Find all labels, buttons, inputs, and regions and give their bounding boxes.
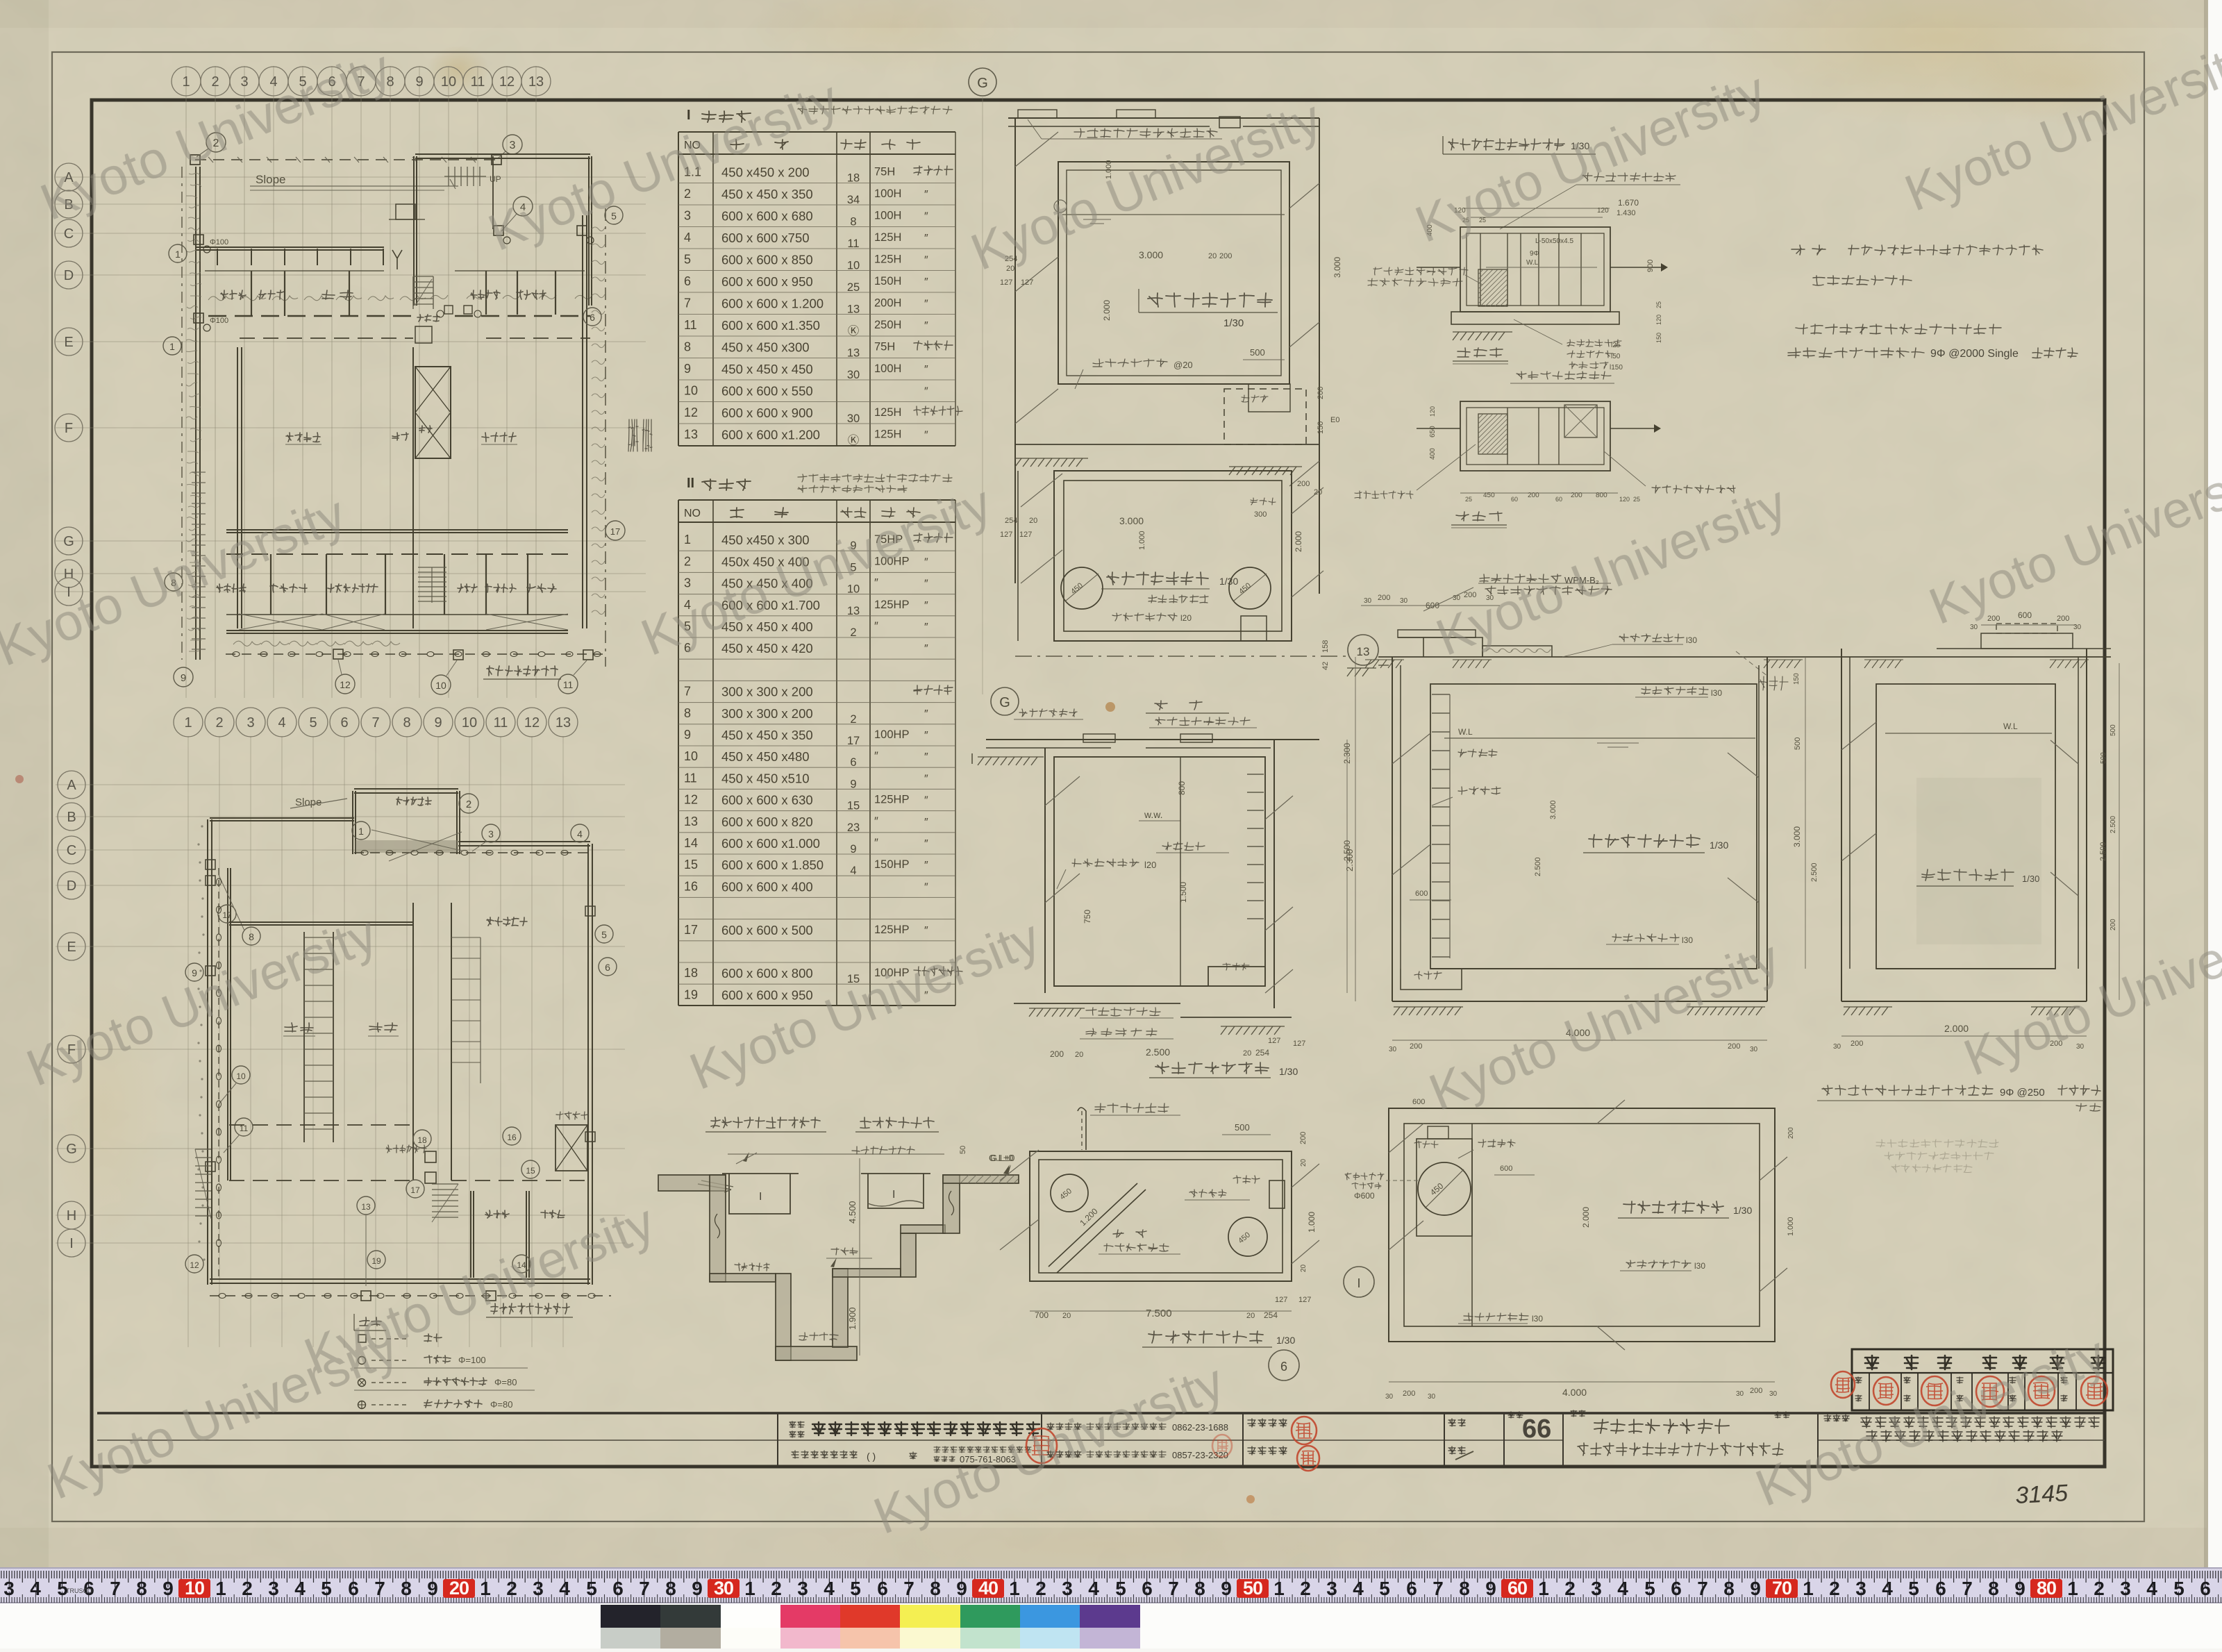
svg-text:11: 11 [684,771,697,785]
svg-text:4: 4 [30,1578,41,1599]
svg-text:1: 1 [480,1578,491,1599]
svg-text:12: 12 [340,679,351,690]
svg-text:Ɩ30: Ɩ30 [1682,935,1693,945]
svg-text:″: ″ [874,750,878,762]
svg-text:30: 30 [1769,1390,1778,1398]
svg-text:4: 4 [824,1578,835,1599]
svg-text:9Φ: 9Φ [1530,250,1539,258]
svg-text:14: 14 [684,836,698,850]
svg-text:UP: UP [490,174,501,184]
svg-text:6: 6 [612,1578,624,1599]
svg-text:6: 6 [877,1578,888,1599]
svg-text:6: 6 [850,756,856,769]
svg-text:1.000: 1.000 [1787,1217,1795,1236]
svg-text:18: 18 [417,1135,427,1145]
svg-text:600 x 600 x 820: 600 x 600 x 820 [721,815,813,829]
svg-text:600: 600 [2018,610,2032,620]
svg-text:300 x 300 x 200: 300 x 300 x 200 [721,706,813,721]
svg-text:254: 254 [1005,517,1017,525]
svg-text:I: I [69,1236,74,1251]
svg-text:600 x 600 x 630: 600 x 600 x 630 [721,793,813,808]
svg-text:16: 16 [684,879,698,893]
svg-text:25: 25 [1465,496,1472,503]
svg-text:W.L: W.L [1458,727,1473,737]
svg-text:2.000: 2.000 [1102,300,1112,321]
svg-text:1/30: 1/30 [1219,576,1238,587]
svg-text:7: 7 [1432,1578,1444,1599]
svg-text:″: ″ [924,556,928,568]
svg-text:30: 30 [1970,624,1978,631]
svg-text:600 x 600 x 800: 600 x 600 x 800 [721,966,813,981]
svg-text:6: 6 [2200,1578,2211,1599]
svg-text:125H: 125H [874,231,901,244]
svg-text:1: 1 [1803,1578,1814,1599]
svg-text:150: 150 [1793,673,1801,685]
svg-text:8: 8 [1459,1578,1470,1599]
svg-text:2.300: 2.300 [1342,743,1352,764]
svg-text:5: 5 [1115,1578,1126,1599]
svg-text:″: ″ [874,620,878,633]
svg-text:D: D [64,268,74,283]
svg-text:4: 4 [559,1578,570,1599]
svg-text:C: C [67,843,76,858]
svg-text:125HP: 125HP [874,924,909,936]
svg-text:6: 6 [605,962,610,973]
svg-text:″: ″ [924,795,928,807]
svg-text:9: 9 [684,728,691,742]
svg-text:20: 20 [1246,1312,1255,1320]
svg-text:1: 1 [169,341,175,352]
svg-text:C: C [64,226,74,242]
svg-text:12: 12 [499,74,515,90]
svg-text:@20: @20 [1173,360,1193,370]
svg-text:100H: 100H [874,210,901,222]
svg-text:I: I [687,108,691,123]
svg-text:5: 5 [1379,1578,1390,1599]
svg-text:5: 5 [850,1578,861,1599]
svg-text:25: 25 [1633,496,1640,503]
svg-text:20: 20 [1300,1158,1308,1167]
svg-text:10: 10 [441,74,456,90]
svg-text:5: 5 [321,1578,332,1599]
svg-text:500: 500 [1250,347,1265,358]
svg-text:1.500: 1.500 [1178,882,1188,903]
svg-text:1: 1 [1009,1578,1020,1599]
svg-text:450 x 450 x300: 450 x 450 x300 [721,340,810,355]
svg-text:″: ″ [874,577,878,590]
svg-text:2: 2 [1829,1578,1840,1599]
svg-text:13: 13 [555,715,571,731]
svg-text:Φ=80: Φ=80 [490,1399,512,1410]
svg-text:13: 13 [847,347,860,360]
svg-text:125H: 125H [874,253,901,266]
svg-text:G: G [977,76,988,91]
svg-text:″: ″ [924,233,928,244]
svg-text:Slope: Slope [256,173,285,186]
svg-text:25: 25 [1655,301,1662,308]
svg-text:3145: 3145 [2014,1480,2069,1509]
svg-text:200: 200 [1410,1042,1422,1051]
svg-text:″: ″ [924,211,928,223]
svg-text:Ɩ25: Ɩ25 [1611,342,1621,349]
svg-text:17: 17 [410,1185,420,1195]
svg-text:5: 5 [684,253,691,267]
svg-text:G: G [999,695,1010,710]
svg-text:″: ″ [924,189,928,201]
svg-text:3: 3 [488,828,494,840]
svg-text:400: 400 [1429,448,1437,460]
svg-text:600: 600 [1500,1165,1512,1173]
svg-text:″: ″ [924,708,928,720]
svg-text:4: 4 [278,715,285,731]
svg-text:9Φ @250: 9Φ @250 [2000,1087,2045,1099]
svg-text:30: 30 [1736,1390,1744,1398]
svg-text:120: 120 [1429,406,1436,417]
svg-text:11: 11 [471,74,485,90]
svg-text:″: ″ [924,860,928,871]
svg-text:50: 50 [1243,1578,1262,1599]
svg-text:Ɩ30: Ɩ30 [1532,1314,1543,1324]
svg-text:15: 15 [526,1166,535,1176]
svg-text:6: 6 [348,1578,359,1599]
svg-text:1: 1 [215,1578,226,1599]
svg-text:3: 3 [247,715,254,731]
svg-text:2: 2 [242,1578,253,1599]
svg-text:9: 9 [1485,1578,1496,1599]
svg-text:″: ″ [874,837,878,849]
svg-text:60: 60 [1511,496,1518,503]
svg-text:30: 30 [1389,1046,1397,1053]
svg-text:2.500: 2.500 [1534,857,1542,876]
svg-text:23: 23 [847,821,860,834]
svg-text:13: 13 [847,303,860,316]
svg-text:9: 9 [1750,1578,1761,1599]
svg-text:10: 10 [684,384,698,398]
svg-text:200: 200 [1403,1390,1415,1398]
svg-text:1: 1 [175,249,181,260]
svg-text:2.500: 2.500 [1810,862,1819,882]
svg-text:NO: NO [684,508,701,519]
svg-text:6: 6 [590,312,595,323]
svg-text:2: 2 [506,1578,517,1599]
svg-text:″: ″ [924,751,928,763]
svg-text:17: 17 [847,735,860,747]
svg-text:1: 1 [1273,1578,1285,1599]
svg-text:5: 5 [1644,1578,1655,1599]
svg-text:600 x 600 x750: 600 x 600 x750 [721,231,810,245]
svg-text:2: 2 [850,626,856,639]
svg-text:30: 30 [1833,1043,1841,1051]
svg-text:D: D [67,878,76,894]
svg-text:30: 30 [1750,1046,1758,1053]
svg-text:6: 6 [1142,1578,1153,1599]
svg-text:10: 10 [185,1578,204,1599]
svg-text:9: 9 [434,715,442,731]
svg-text:13: 13 [528,74,544,90]
svg-text:8: 8 [665,1578,676,1599]
svg-text:G: G [66,1142,77,1157]
svg-text:2.500: 2.500 [1342,840,1352,861]
svg-text:600 x 600 x 500: 600 x 600 x 500 [721,923,813,937]
svg-text:500: 500 [1794,737,1802,750]
svg-text:Φ=80: Φ=80 [494,1377,517,1387]
svg-text:450 x 450 x510: 450 x 450 x510 [721,771,810,785]
svg-text:150: 150 [1317,422,1325,434]
svg-text:″: ″ [924,386,928,398]
svg-text:500: 500 [2110,724,2117,736]
svg-text:6: 6 [684,274,691,288]
svg-text:200: 200 [1297,480,1310,488]
svg-text:158: 158 [1321,640,1330,653]
svg-text:5: 5 [1908,1578,1919,1599]
svg-text:450 x450 x 300: 450 x450 x 300 [721,533,810,547]
svg-text:7: 7 [1168,1578,1179,1599]
svg-text:10: 10 [236,1071,246,1081]
svg-text:17: 17 [610,526,620,537]
svg-text:200: 200 [1750,1387,1762,1395]
svg-text:7: 7 [110,1578,121,1599]
svg-text:6: 6 [1671,1578,1682,1599]
svg-text:125HP: 125HP [874,794,909,806]
svg-text:4: 4 [577,828,583,840]
svg-text:30: 30 [714,1578,733,1599]
svg-text:9: 9 [684,362,691,376]
svg-text:4.000: 4.000 [1562,1387,1587,1398]
svg-text:11: 11 [847,237,859,250]
svg-text:E: E [64,335,73,350]
svg-text:3.000: 3.000 [1549,800,1557,819]
svg-text:Ɩ150: Ɩ150 [1610,364,1623,372]
svg-text:200H: 200H [874,297,901,310]
svg-text:5: 5 [601,929,607,940]
svg-text:8: 8 [684,340,691,354]
svg-text:2.000: 2.000 [1294,531,1303,552]
svg-text:1.000: 1.000 [1307,1212,1317,1233]
svg-text:″: ″ [924,643,928,655]
svg-text:600 x 600 x 1.200: 600 x 600 x 1.200 [721,297,824,311]
svg-text:800: 800 [1177,781,1187,795]
svg-text:6: 6 [1280,1360,1287,1374]
svg-text:12: 12 [684,793,698,807]
svg-text:3: 3 [1062,1578,1073,1599]
svg-text:17: 17 [222,910,232,920]
svg-text:30: 30 [1364,597,1372,605]
svg-text:Ⓚ: Ⓚ [848,434,860,447]
svg-text:2: 2 [211,74,219,90]
svg-text:1/30: 1/30 [1276,1335,1295,1346]
svg-text:13: 13 [684,815,698,828]
svg-text:9: 9 [2014,1578,2025,1599]
svg-text:700: 700 [1035,1310,1049,1320]
svg-text:B: B [67,810,76,825]
svg-text:600 x 600 x1.000: 600 x 600 x1.000 [721,836,820,851]
svg-text:120: 120 [1597,207,1609,215]
svg-text:4: 4 [1353,1578,1364,1599]
svg-text:200: 200 [2110,919,2117,931]
svg-text:15: 15 [684,858,698,871]
svg-text:G: G [63,534,74,549]
svg-text:20: 20 [1075,1051,1083,1059]
svg-text:12: 12 [524,715,540,731]
svg-text:8: 8 [403,715,410,731]
svg-text:3: 3 [533,1578,544,1599]
svg-text:F: F [65,421,73,436]
svg-text:50: 50 [959,1146,967,1154]
svg-text:9: 9 [162,1578,174,1599]
svg-text:Φ=100: Φ=100 [458,1355,486,1365]
svg-text:Ɩ50: Ɩ50 [1611,353,1621,360]
svg-text:9: 9 [181,672,186,684]
svg-text:100HP: 100HP [874,728,909,741]
svg-text:450 x 450 x480: 450 x 450 x480 [721,749,810,764]
svg-text:4: 4 [1882,1578,1893,1599]
svg-text:600 x 600 x1.200: 600 x 600 x1.200 [721,428,820,442]
svg-text:1/30: 1/30 [1733,1205,1752,1216]
svg-text:13: 13 [361,1202,371,1212]
svg-text:120: 120 [1619,496,1630,503]
svg-text:6: 6 [340,715,348,731]
svg-text:Ɩ20: Ɩ20 [1144,860,1156,870]
svg-text:42: 42 [1321,662,1330,670]
svg-text:650: 650 [1429,426,1437,437]
svg-text:120: 120 [1655,315,1662,325]
svg-text:I: I [892,1189,895,1201]
svg-text:9: 9 [850,843,856,856]
svg-text:″: ″ [924,730,928,742]
svg-text:19: 19 [684,987,698,1001]
svg-text:3: 3 [268,1578,279,1599]
svg-text:7: 7 [639,1578,650,1599]
svg-text:127: 127 [1021,278,1033,287]
svg-text:34: 34 [847,194,860,206]
svg-text:15: 15 [847,800,860,812]
svg-text:8: 8 [401,1578,412,1599]
svg-text:7: 7 [371,715,379,731]
svg-text:200: 200 [1851,1040,1863,1048]
svg-text:254: 254 [1255,1048,1269,1058]
svg-text:7: 7 [903,1578,914,1599]
svg-text:3: 3 [2120,1578,2131,1599]
svg-text:600 x 600 x1.350: 600 x 600 x1.350 [721,318,820,333]
svg-text:3.000: 3.000 [1139,249,1163,260]
svg-text:H: H [67,1208,76,1224]
svg-text:254: 254 [1264,1310,1278,1320]
svg-text:3: 3 [240,74,248,90]
svg-text:600 x 600 x 550: 600 x 600 x 550 [721,384,813,399]
svg-text:9Φ @2000 Single: 9Φ @2000 Single [1930,348,2019,360]
svg-text:60: 60 [1555,496,1562,503]
svg-text:2: 2 [850,713,856,726]
svg-text:3.000: 3.000 [1119,515,1144,526]
svg-text:125H: 125H [874,428,901,441]
svg-text:″: ″ [924,838,928,850]
svg-text:3: 3 [797,1578,808,1599]
svg-text:150H: 150H [874,275,901,287]
svg-text:Ɩ30: Ɩ30 [1686,635,1697,645]
svg-text:4: 4 [294,1578,306,1599]
svg-text:1.670: 1.670 [1618,198,1639,208]
svg-text:Ⓚ: Ⓚ [848,324,860,337]
svg-text:3: 3 [684,209,691,223]
svg-text:Ɩ20: Ɩ20 [1180,613,1192,623]
svg-text:12: 12 [684,406,698,419]
svg-text:13: 13 [847,605,860,617]
svg-text:2.000: 2.000 [1581,1207,1591,1228]
svg-text:70: 70 [1772,1578,1791,1599]
svg-text:I: I [759,1191,762,1203]
svg-text:″: ″ [924,255,928,267]
svg-text:20: 20 [1243,1049,1251,1058]
svg-text:2.500: 2.500 [1146,1046,1170,1058]
svg-text:″: ″ [924,600,928,612]
svg-text:200: 200 [2057,615,2069,623]
svg-text:600 x 600 x 680: 600 x 600 x 680 [721,209,813,224]
svg-text:19: 19 [371,1256,381,1266]
svg-text:30: 30 [2073,624,2082,631]
svg-text:30: 30 [1428,1393,1436,1401]
svg-text:Φ600: Φ600 [1354,1191,1375,1201]
svg-text:1: 1 [184,715,192,731]
svg-text:450 x 450 x 350: 450 x 450 x 350 [721,187,813,201]
svg-text:7: 7 [1962,1578,1973,1599]
svg-text:4: 4 [684,231,691,244]
svg-text:″: ″ [924,364,928,376]
svg-text:3: 3 [1855,1578,1866,1599]
svg-text:125H: 125H [874,406,901,419]
svg-text:″: ″ [924,621,928,633]
svg-text:w.w.: w.w. [1144,809,1162,820]
svg-text:10: 10 [462,715,477,731]
svg-text:20: 20 [1300,1264,1308,1272]
svg-text:30: 30 [847,412,860,425]
svg-text:7: 7 [374,1578,385,1599]
svg-text:1: 1 [684,533,691,547]
svg-text:3: 3 [3,1578,15,1599]
svg-text:12: 12 [190,1260,199,1270]
svg-text:1/30: 1/30 [1223,317,1244,329]
svg-text:17: 17 [684,923,698,937]
svg-text:66: 66 [1522,1415,1551,1444]
svg-text:200: 200 [1050,1049,1064,1059]
svg-text:9: 9 [415,74,423,90]
svg-text:75H: 75H [874,166,895,178]
svg-text:W.L: W.L [1526,259,1539,267]
svg-text:20: 20 [1314,488,1322,497]
svg-text:W.L: W.L [2003,721,2018,731]
svg-text:8: 8 [684,706,691,720]
svg-text:1: 1 [182,74,190,90]
svg-text:10: 10 [847,260,860,272]
svg-text:40: 40 [978,1578,998,1599]
svg-text:2: 2 [1564,1578,1576,1599]
svg-text:75H: 75H [874,341,895,353]
svg-text:2: 2 [684,187,691,201]
svg-text:9: 9 [956,1578,967,1599]
svg-text:127: 127 [1019,531,1032,539]
svg-text:200: 200 [1317,387,1325,399]
svg-text:2: 2 [771,1578,782,1599]
svg-text:3.000: 3.000 [1792,826,1802,847]
svg-text:1: 1 [2067,1578,2078,1599]
svg-text:8: 8 [930,1578,941,1599]
svg-text:3: 3 [684,576,691,590]
svg-text:127: 127 [1298,1296,1311,1304]
svg-text:II: II [687,476,694,491]
svg-text:11: 11 [684,318,697,332]
svg-text:80: 80 [2037,1578,2056,1599]
svg-text:1: 1 [1538,1578,1549,1599]
svg-text:″: ″ [924,578,928,590]
